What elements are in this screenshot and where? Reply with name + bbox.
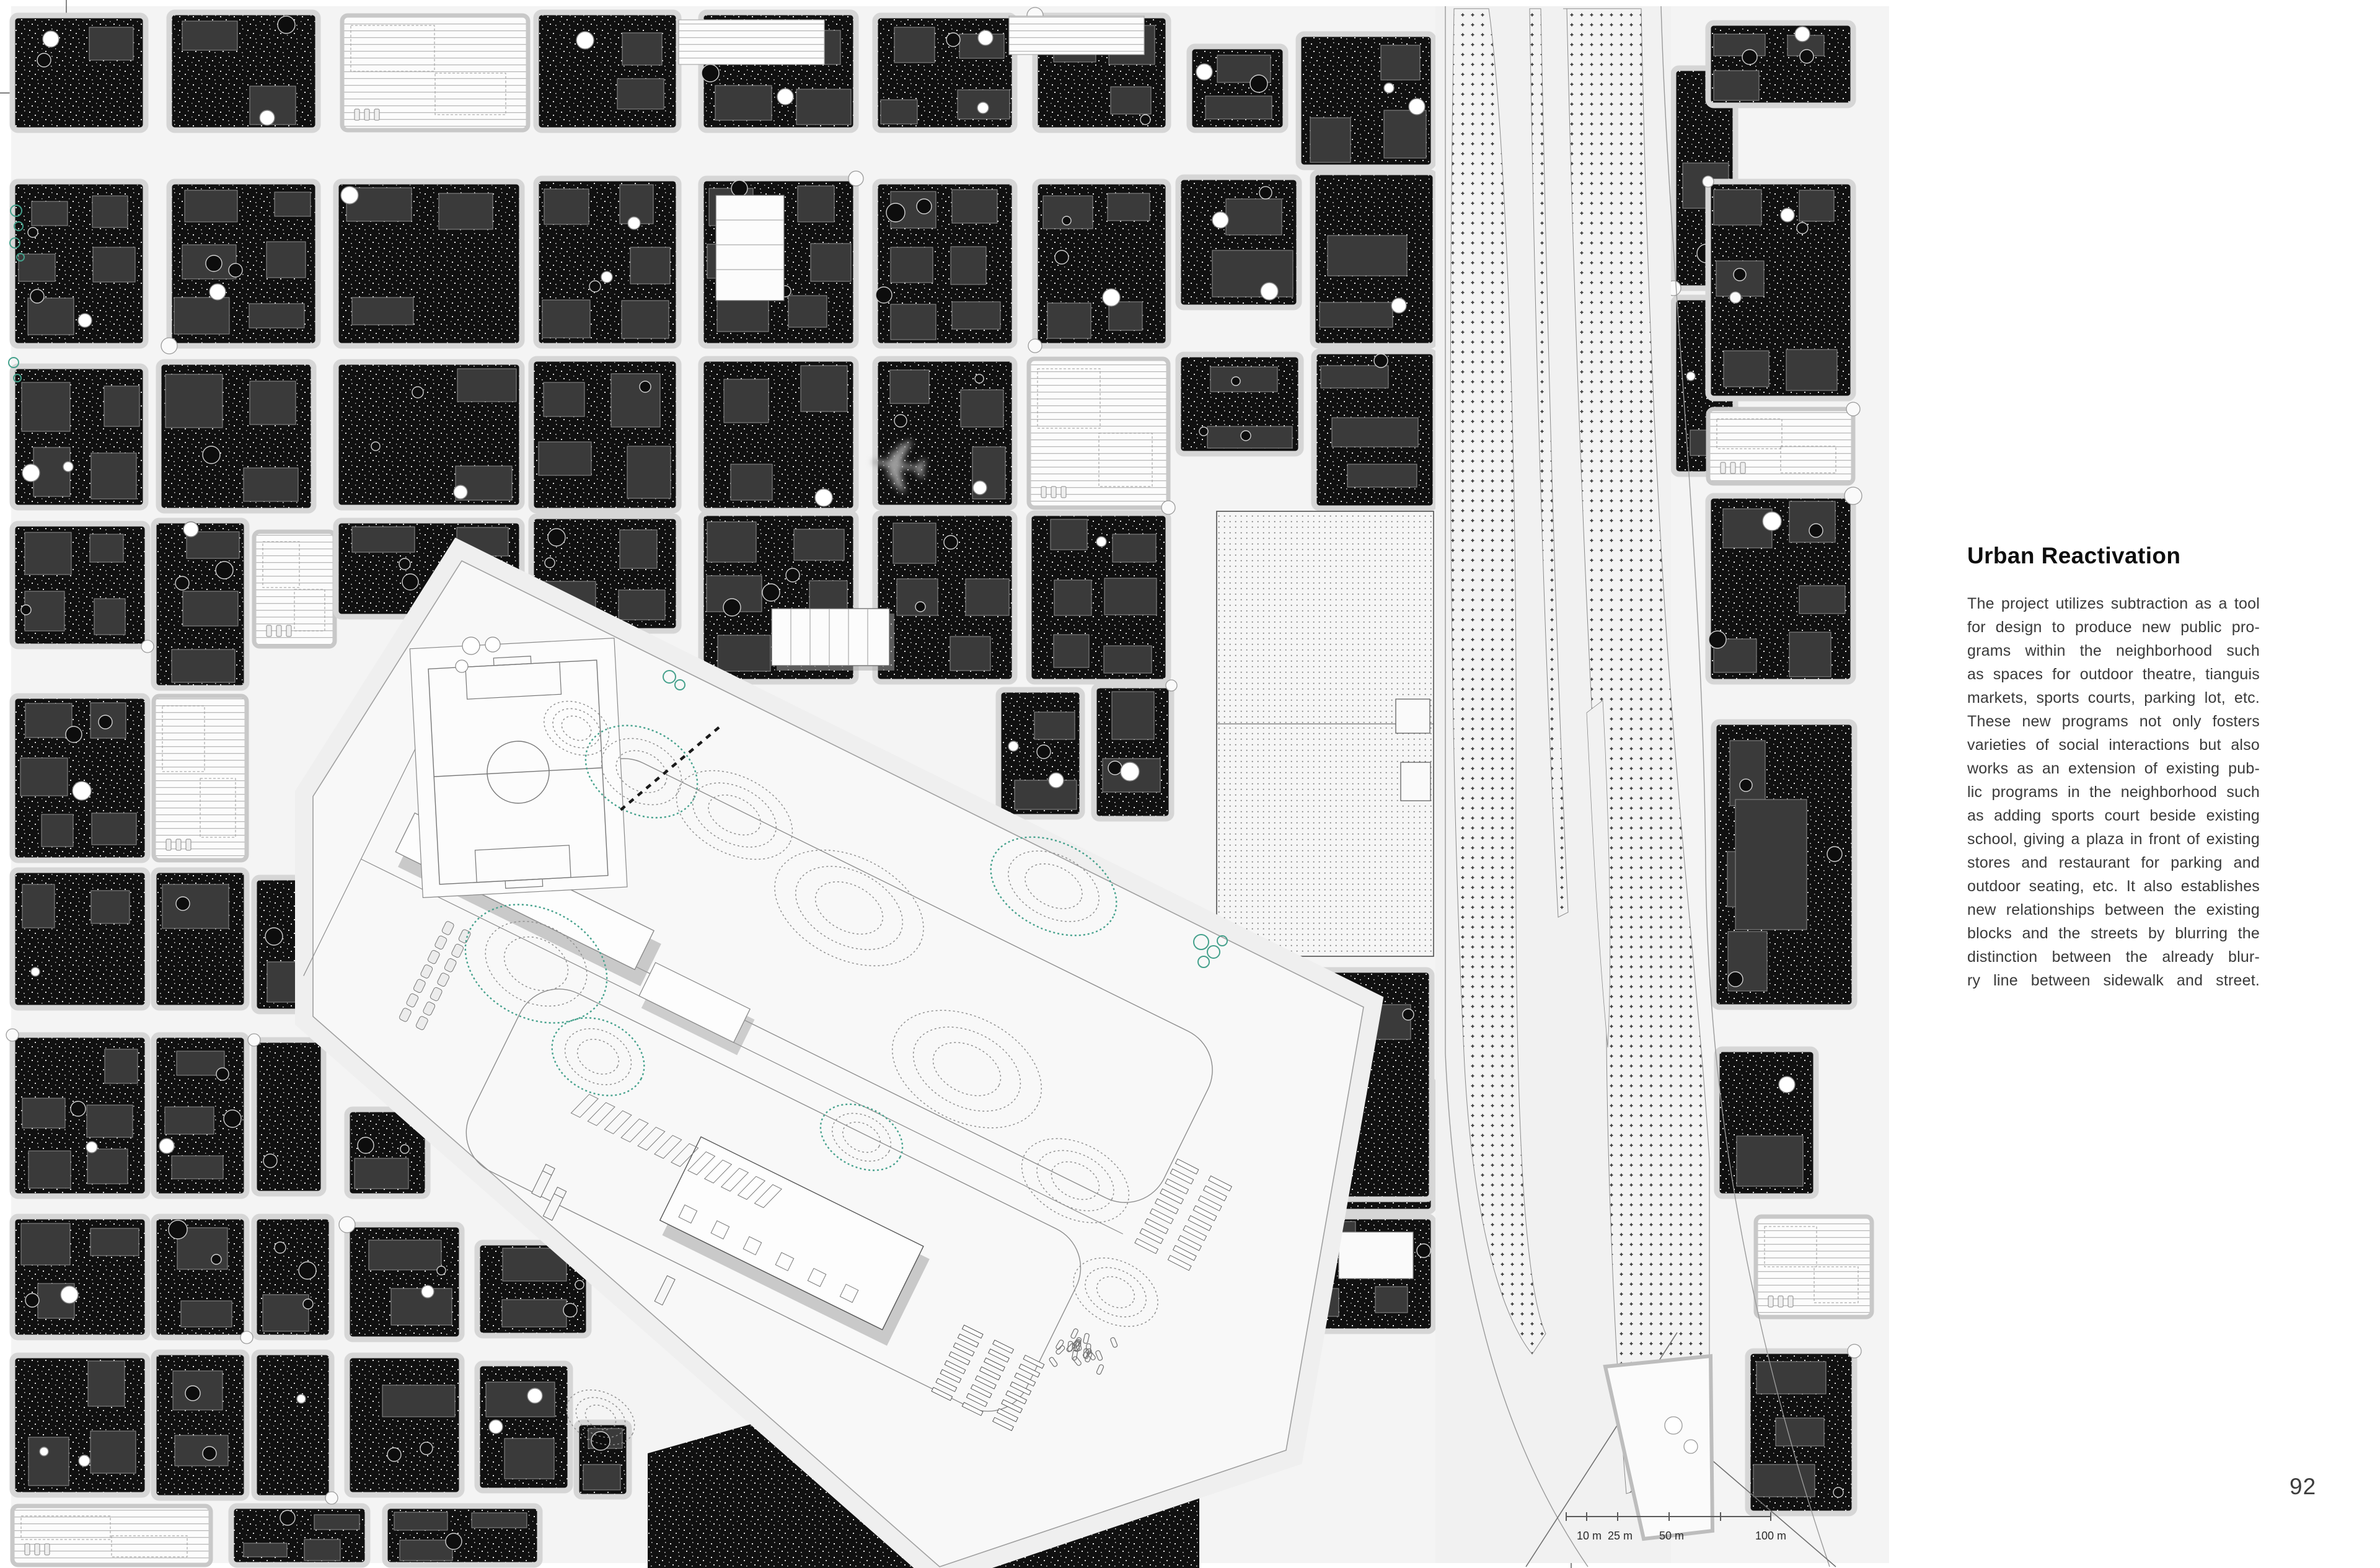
scale-tick [1720,1512,1721,1521]
article: Urban Reactivation The project utilizes … [1967,544,2260,992]
city-block [1178,355,1301,454]
city-block [154,870,247,1008]
city-block [342,15,528,130]
city-block [1035,182,1168,346]
city-block [1708,23,1853,105]
article-line: blocks and the streets by blurring the [1967,922,2260,945]
scale-tick [1566,1512,1567,1521]
article-line: new relationships between the existing [1967,898,2260,922]
airplane-icon: ✈ [862,418,935,509]
article-line: as adding sports court beside existing [1967,804,2260,827]
city-block [254,1217,332,1337]
city-block [1094,685,1171,819]
scale-tick [1586,1512,1587,1521]
city-block [347,1225,462,1339]
city-block [154,1035,247,1196]
city-block [254,532,335,646]
city-block [12,1035,148,1196]
street-tree-icon [161,338,177,354]
street-tree-icon [1730,292,1741,303]
article-line: for design to produce new public pro- [1967,615,2260,639]
city-block [154,1352,247,1498]
city-block [701,359,856,511]
city-block [12,1506,211,1565]
article-line: These new programs not only fosters [1967,710,2260,733]
street-tree-icon [1846,402,1860,416]
site-plan-map: ✈ [0,0,1897,1568]
article-line: distinction between the already blur- [1967,945,2260,969]
city-block [531,359,679,511]
city-block [12,182,146,346]
article-line: school, giving a plaza in front of exist… [1967,827,2260,851]
article-line: The project utilizes subtraction as a to… [1967,592,2260,615]
city-block [347,1355,462,1495]
street-tree-icon [1848,1344,1861,1358]
street-tree-icon [1703,176,1714,187]
city-block [159,362,314,511]
city-block [1313,172,1435,346]
city-block [1748,1351,1854,1513]
street-tree-icon [6,1029,19,1041]
city-block [1314,351,1435,508]
article-line: varieties of social interactions but als… [1967,733,2260,757]
city-block [875,513,1015,682]
city-block [1178,177,1299,307]
city-block [1029,513,1168,682]
article-body: The project utilizes subtraction as a to… [1967,592,2260,992]
city-block [12,1217,148,1337]
city-block [536,178,679,346]
city-block [169,12,318,130]
city-block [1708,496,1853,682]
street-tree-icon [240,1331,253,1344]
street-tree-icon [1028,339,1042,353]
city-block [385,1506,540,1565]
article-line: stores and restaurant for parking and [1967,851,2260,874]
article-line: works as an extension of existing pub- [1967,757,2260,780]
city-block [1189,46,1285,130]
city-block [254,1040,324,1194]
scale-tick [1617,1512,1618,1521]
city-block [254,1352,332,1498]
city-block [154,521,247,688]
city-block [576,1422,629,1497]
city-block [12,870,148,1008]
site-plan-drawing: ✈ [0,0,1897,1568]
scale-tick [1668,1512,1670,1521]
city-block [336,182,522,346]
scale-bar: 10 m 25 m 50 m 100 m [1566,1511,1771,1548]
scale-label: 100 m [1755,1530,1786,1543]
city-block [154,1217,247,1337]
scale-label: 10 m [1577,1530,1602,1543]
city-block [875,15,1015,130]
city-block [1298,34,1434,167]
soccer-field [410,638,627,898]
street-tree-icon [1844,487,1862,504]
scale-tick [1770,1512,1771,1521]
city-block [1708,409,1853,483]
street-tree-icon [325,1492,338,1504]
scale-label: 25 m [1608,1530,1633,1543]
article-title: Urban Reactivation [1967,544,2260,568]
city-block [231,1506,368,1565]
page-number: 92 [2290,1474,2316,1500]
dotted-plaza [1217,511,1434,956]
street-tree-icon [848,171,863,186]
street-tree-icon [1166,680,1177,691]
city-block [12,15,146,130]
city-block [154,696,247,860]
city-block [12,524,148,646]
article-line: markets, sports courts, parking lot, etc… [1967,686,2260,710]
article-line: as spaces for outdoor theatre, tianguis [1967,663,2260,686]
article-line: grams within the neighborhood such [1967,639,2260,663]
street-tree-icon [1161,501,1175,514]
city-block [875,182,1015,346]
city-block [1029,359,1168,508]
article-line: lic programs in the neighborhood such [1967,780,2260,804]
city-block [998,690,1082,817]
city-block [12,1355,148,1495]
street-tree-icon [248,1034,260,1046]
city-block [1708,182,1853,399]
street-tree-icon [339,1217,355,1233]
street-tree-icon [141,640,154,653]
city-block [536,12,679,130]
article-line: ry line between sidewalk and street. [1967,969,2260,992]
city-block [169,182,318,346]
city-block [336,362,522,508]
scale-label: 50 m [1659,1530,1684,1543]
article-line: outdoor seating, etc. It also establishe… [1967,874,2260,898]
city-block [477,1363,570,1491]
city-block [12,366,146,508]
city-block [12,696,148,860]
school-building [772,609,894,671]
city-block [1756,1217,1872,1317]
